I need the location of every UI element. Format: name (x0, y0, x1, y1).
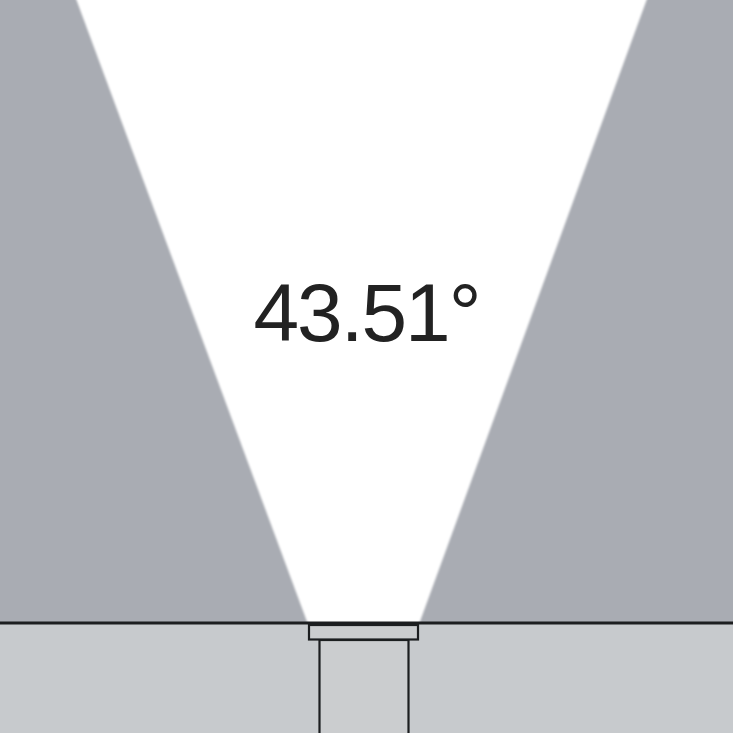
fixture-cap (309, 625, 418, 640)
fixture-body (320, 640, 409, 733)
beam-angle-diagram: 43.51° (0, 0, 733, 733)
diagram-canvas (0, 0, 733, 733)
